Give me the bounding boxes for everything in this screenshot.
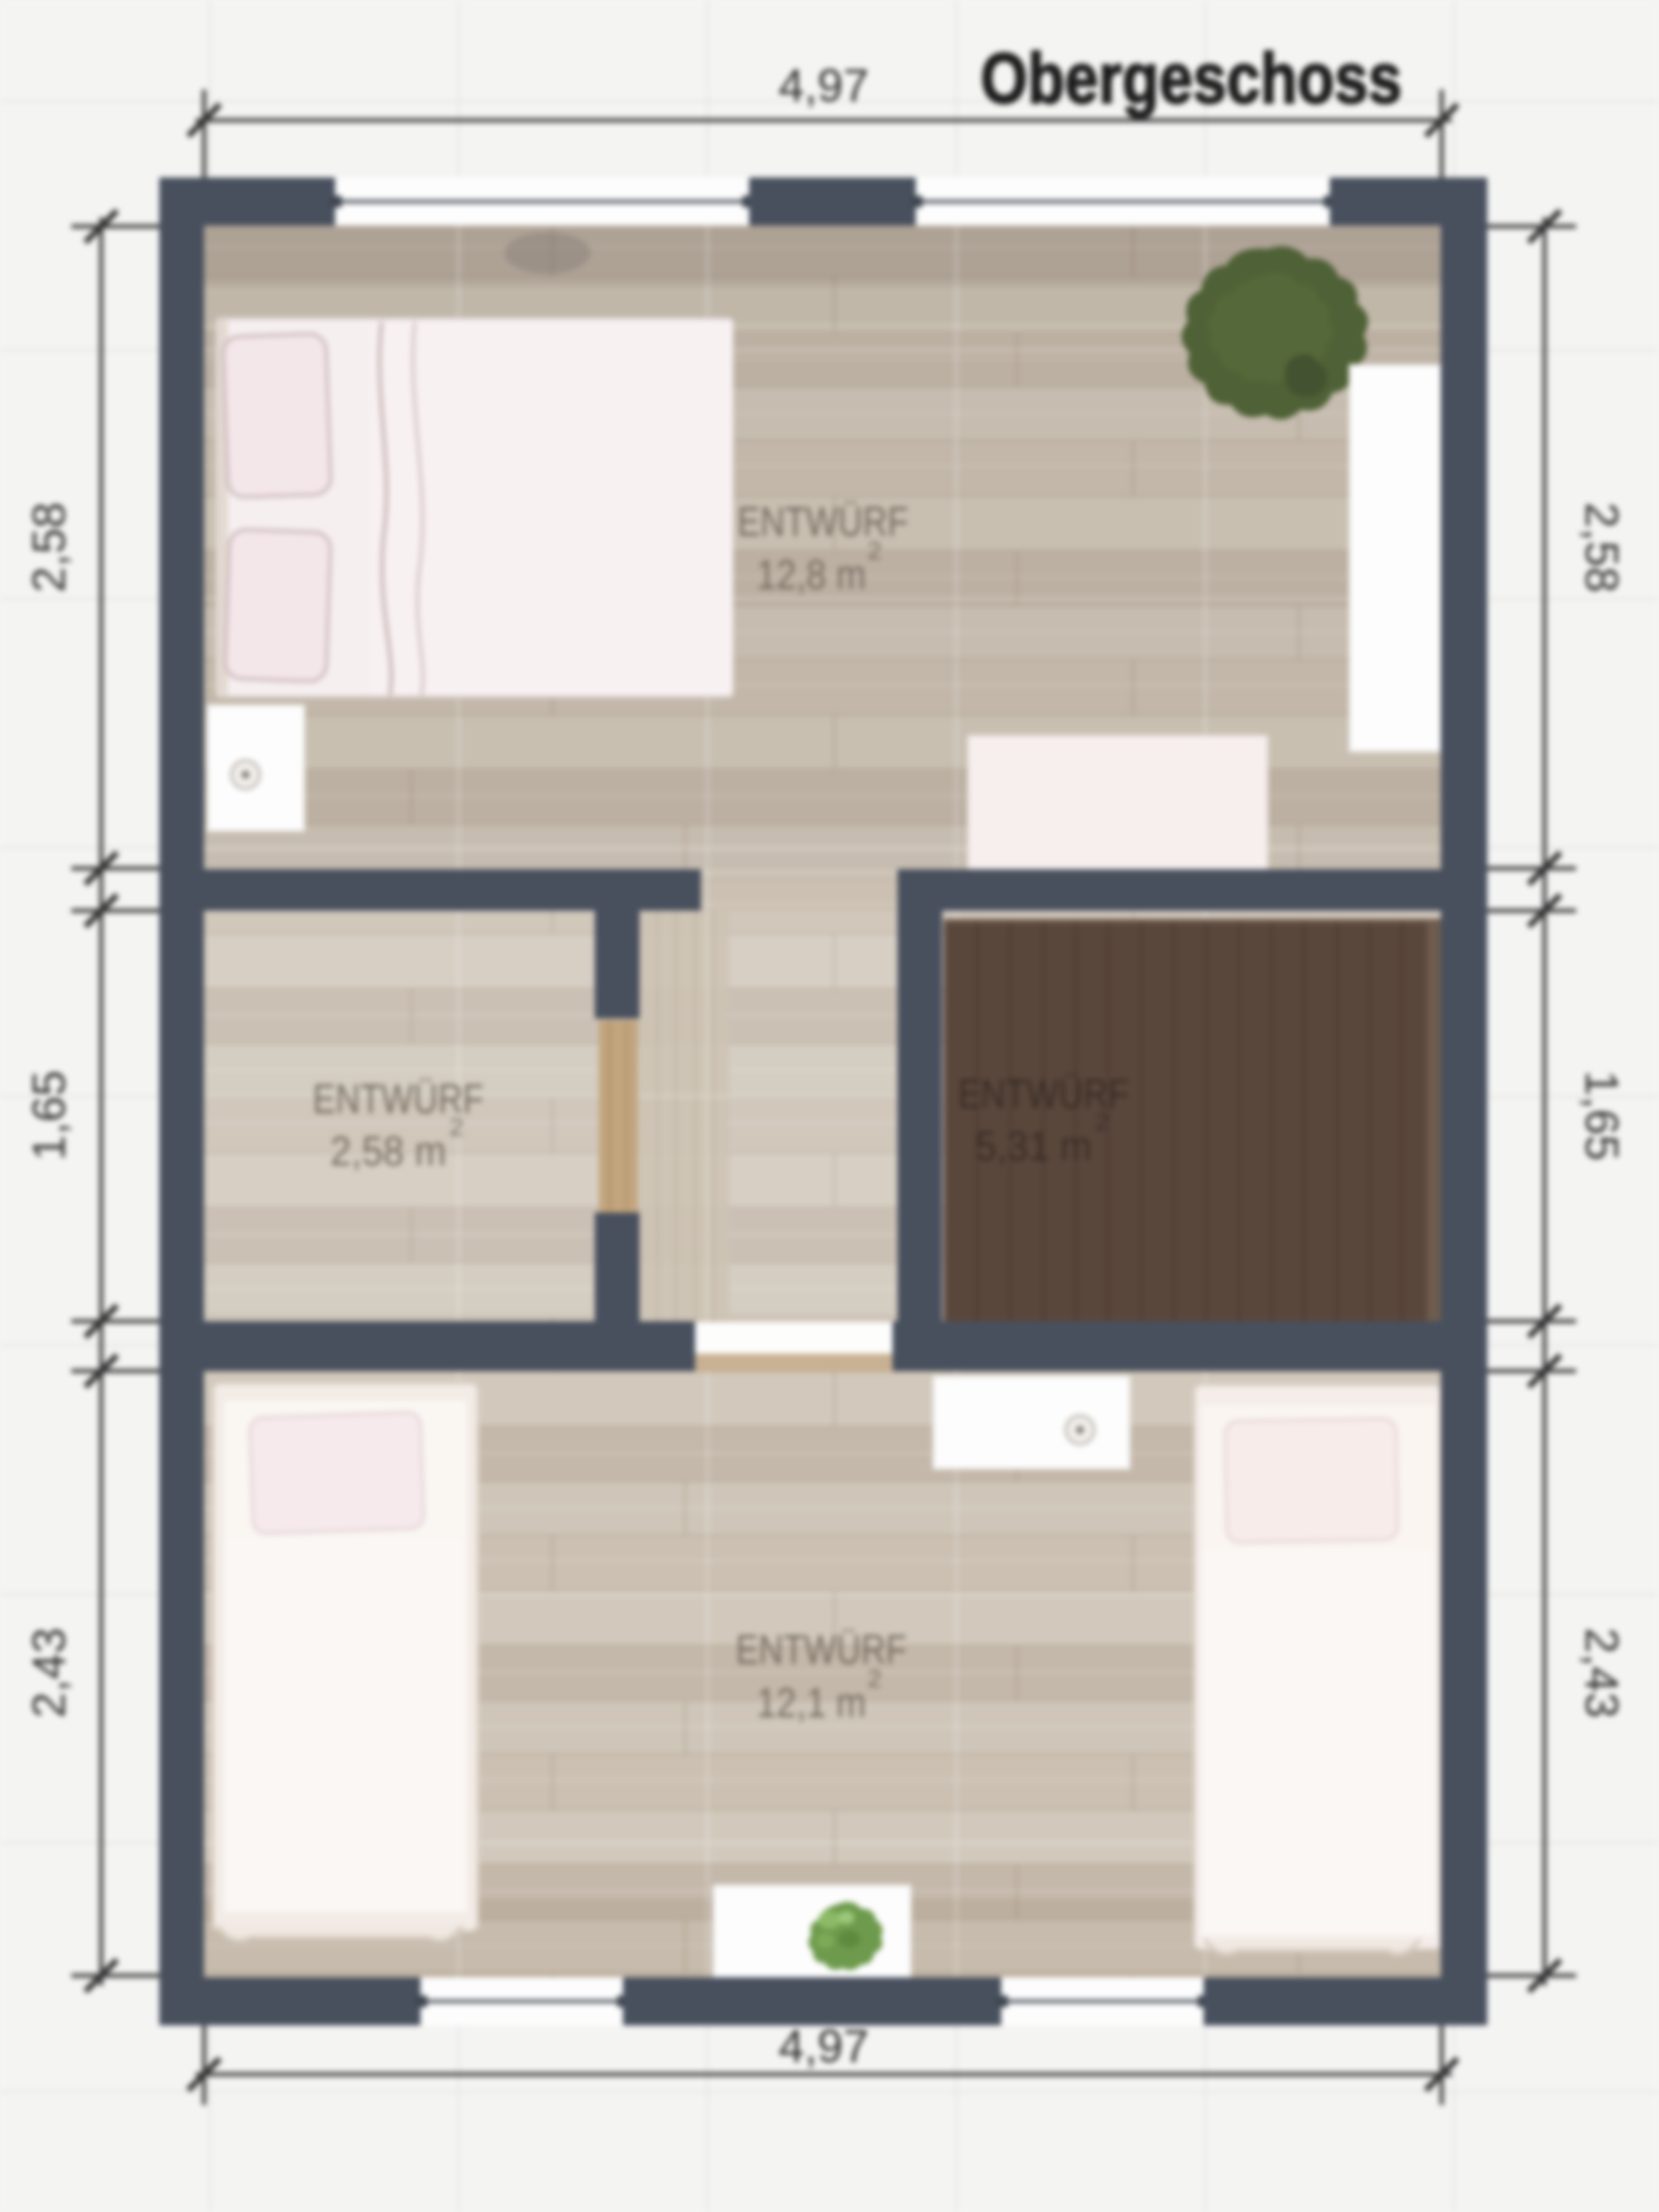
svg-text:4,97: 4,97 — [779, 59, 869, 111]
svg-text:2,58 m: 2,58 m — [330, 1128, 446, 1174]
svg-text:12,8 m: 12,8 m — [757, 552, 866, 598]
svg-text:2,43: 2,43 — [1576, 1628, 1628, 1719]
svg-text:2: 2 — [868, 1665, 882, 1693]
svg-text:2: 2 — [868, 537, 882, 565]
svg-text:Obergeschoss: Obergeschoss — [980, 39, 1402, 119]
svg-text:2,58: 2,58 — [1576, 503, 1628, 593]
svg-text:1,65: 1,65 — [1576, 1071, 1628, 1161]
svg-text:5,31 m: 5,31 m — [975, 1123, 1092, 1169]
svg-text:2: 2 — [1095, 1109, 1109, 1136]
svg-text:ENTWÜRF: ENTWÜRF — [737, 498, 908, 545]
svg-text:12,1 m: 12,1 m — [757, 1680, 866, 1726]
svg-text:2: 2 — [450, 1114, 464, 1141]
svg-text:1,65: 1,65 — [22, 1071, 75, 1161]
svg-text:4,97: 4,97 — [779, 2020, 869, 2072]
svg-text:2,43: 2,43 — [22, 1628, 75, 1719]
svg-text:2,58: 2,58 — [22, 503, 75, 593]
